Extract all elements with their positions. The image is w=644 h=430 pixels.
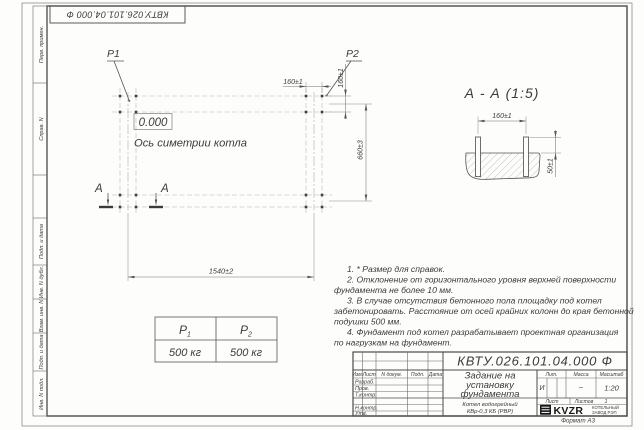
mass-label: Масса (573, 372, 588, 378)
strip-cell-podp-data-2: Подп. и дата (39, 334, 45, 369)
note-line: 3. В случае отсутствия бетонного пола пл… (347, 296, 602, 306)
kvzr-logo-sub2: ЗАВОД РЭП (592, 410, 617, 415)
kvzr-logo-icon (540, 405, 551, 415)
row-utv: Утв. (354, 411, 367, 417)
notes-block: 1. * Размер для справок. 2. Отклонение о… (333, 264, 634, 348)
elevation-value: 0.000 (139, 117, 168, 129)
col-list: Лист (362, 372, 376, 378)
p1-label: P1 (107, 48, 120, 60)
product-line1: Котел водогрейный (462, 401, 518, 408)
note-line: 1. * Размер для справок. (347, 264, 445, 274)
note-line: 2. Отклонение от горизонтального уровня … (346, 275, 616, 285)
strip-cell-inv-podl: Инв. N подл. (39, 377, 45, 410)
svg-text:1540±2: 1540±2 (209, 267, 233, 276)
note-line: фундамента не более 10 мм. (334, 285, 453, 295)
col-data: Дата (428, 372, 443, 378)
mass-value: – (579, 384, 583, 391)
strip-cell-vzam-inv: Взам. инв. N (39, 299, 45, 333)
row-prov: Пров. (355, 386, 369, 392)
doc-number: КВТУ.026.101.04.000 Ф (457, 354, 612, 369)
note-line: по нагрузкам на фундамент. (334, 338, 452, 348)
col-izm: Изм. (352, 372, 363, 378)
scale-value: 1:20 (604, 384, 619, 393)
note-line: подушки 500 мм. (334, 317, 402, 327)
kvzr-logo-text: KVZR (554, 405, 584, 417)
strip-cell-perv-primen: Перв. примен. (39, 26, 45, 63)
svg-text:160±1: 160±1 (492, 113, 512, 120)
lit-label: Лит. (545, 372, 558, 378)
boiler-axis-label: Ось симетрии котла (134, 138, 247, 150)
col-podp: Подп. (411, 372, 425, 378)
strip-cell-inv-dubl: Инв. N дубл. (39, 266, 45, 298)
drawing-title-line3: фундамента (461, 389, 520, 400)
load-value-p1: 500 кг (169, 347, 202, 359)
p2-label: P2 (346, 48, 359, 60)
section-letter-left: А (94, 183, 103, 195)
row-tkontr: Т.контр. (355, 392, 377, 398)
product-line2: КВр-0,3 КБ (РВР) (467, 409, 513, 415)
load-value-p2: 500 кг (230, 347, 263, 359)
note-line: 4. Фундамент под котел разрабатывает про… (347, 327, 619, 337)
strip-cell-podp-data-1: Подп. и дата (39, 224, 45, 259)
corner-doc-number: КВТУ.026.101.04.000 Ф (66, 10, 168, 20)
svg-text:50±1: 50±1 (548, 158, 555, 174)
scale-label: Масштаб (600, 372, 625, 378)
section-title: А - А (1:5) (464, 85, 540, 101)
svg-text:160±1: 160±1 (283, 79, 303, 86)
section-letter-right: А (160, 183, 169, 195)
svg-text:160±1: 160±1 (338, 68, 345, 88)
note-line: забетонировать. Расстояние от осей крайн… (333, 306, 634, 316)
row-razrab: Разраб. (355, 379, 375, 385)
col-ndokum: N докум. (381, 372, 402, 378)
format-label: Формат А3 (561, 418, 595, 425)
strip-cell-sprav-n: Справ. N (39, 116, 45, 140)
drawing-sheet: Перв. примен. Справ. N Подп. и дата Инв.… (0, 0, 644, 430)
svg-text:660±3: 660±3 (358, 140, 365, 160)
